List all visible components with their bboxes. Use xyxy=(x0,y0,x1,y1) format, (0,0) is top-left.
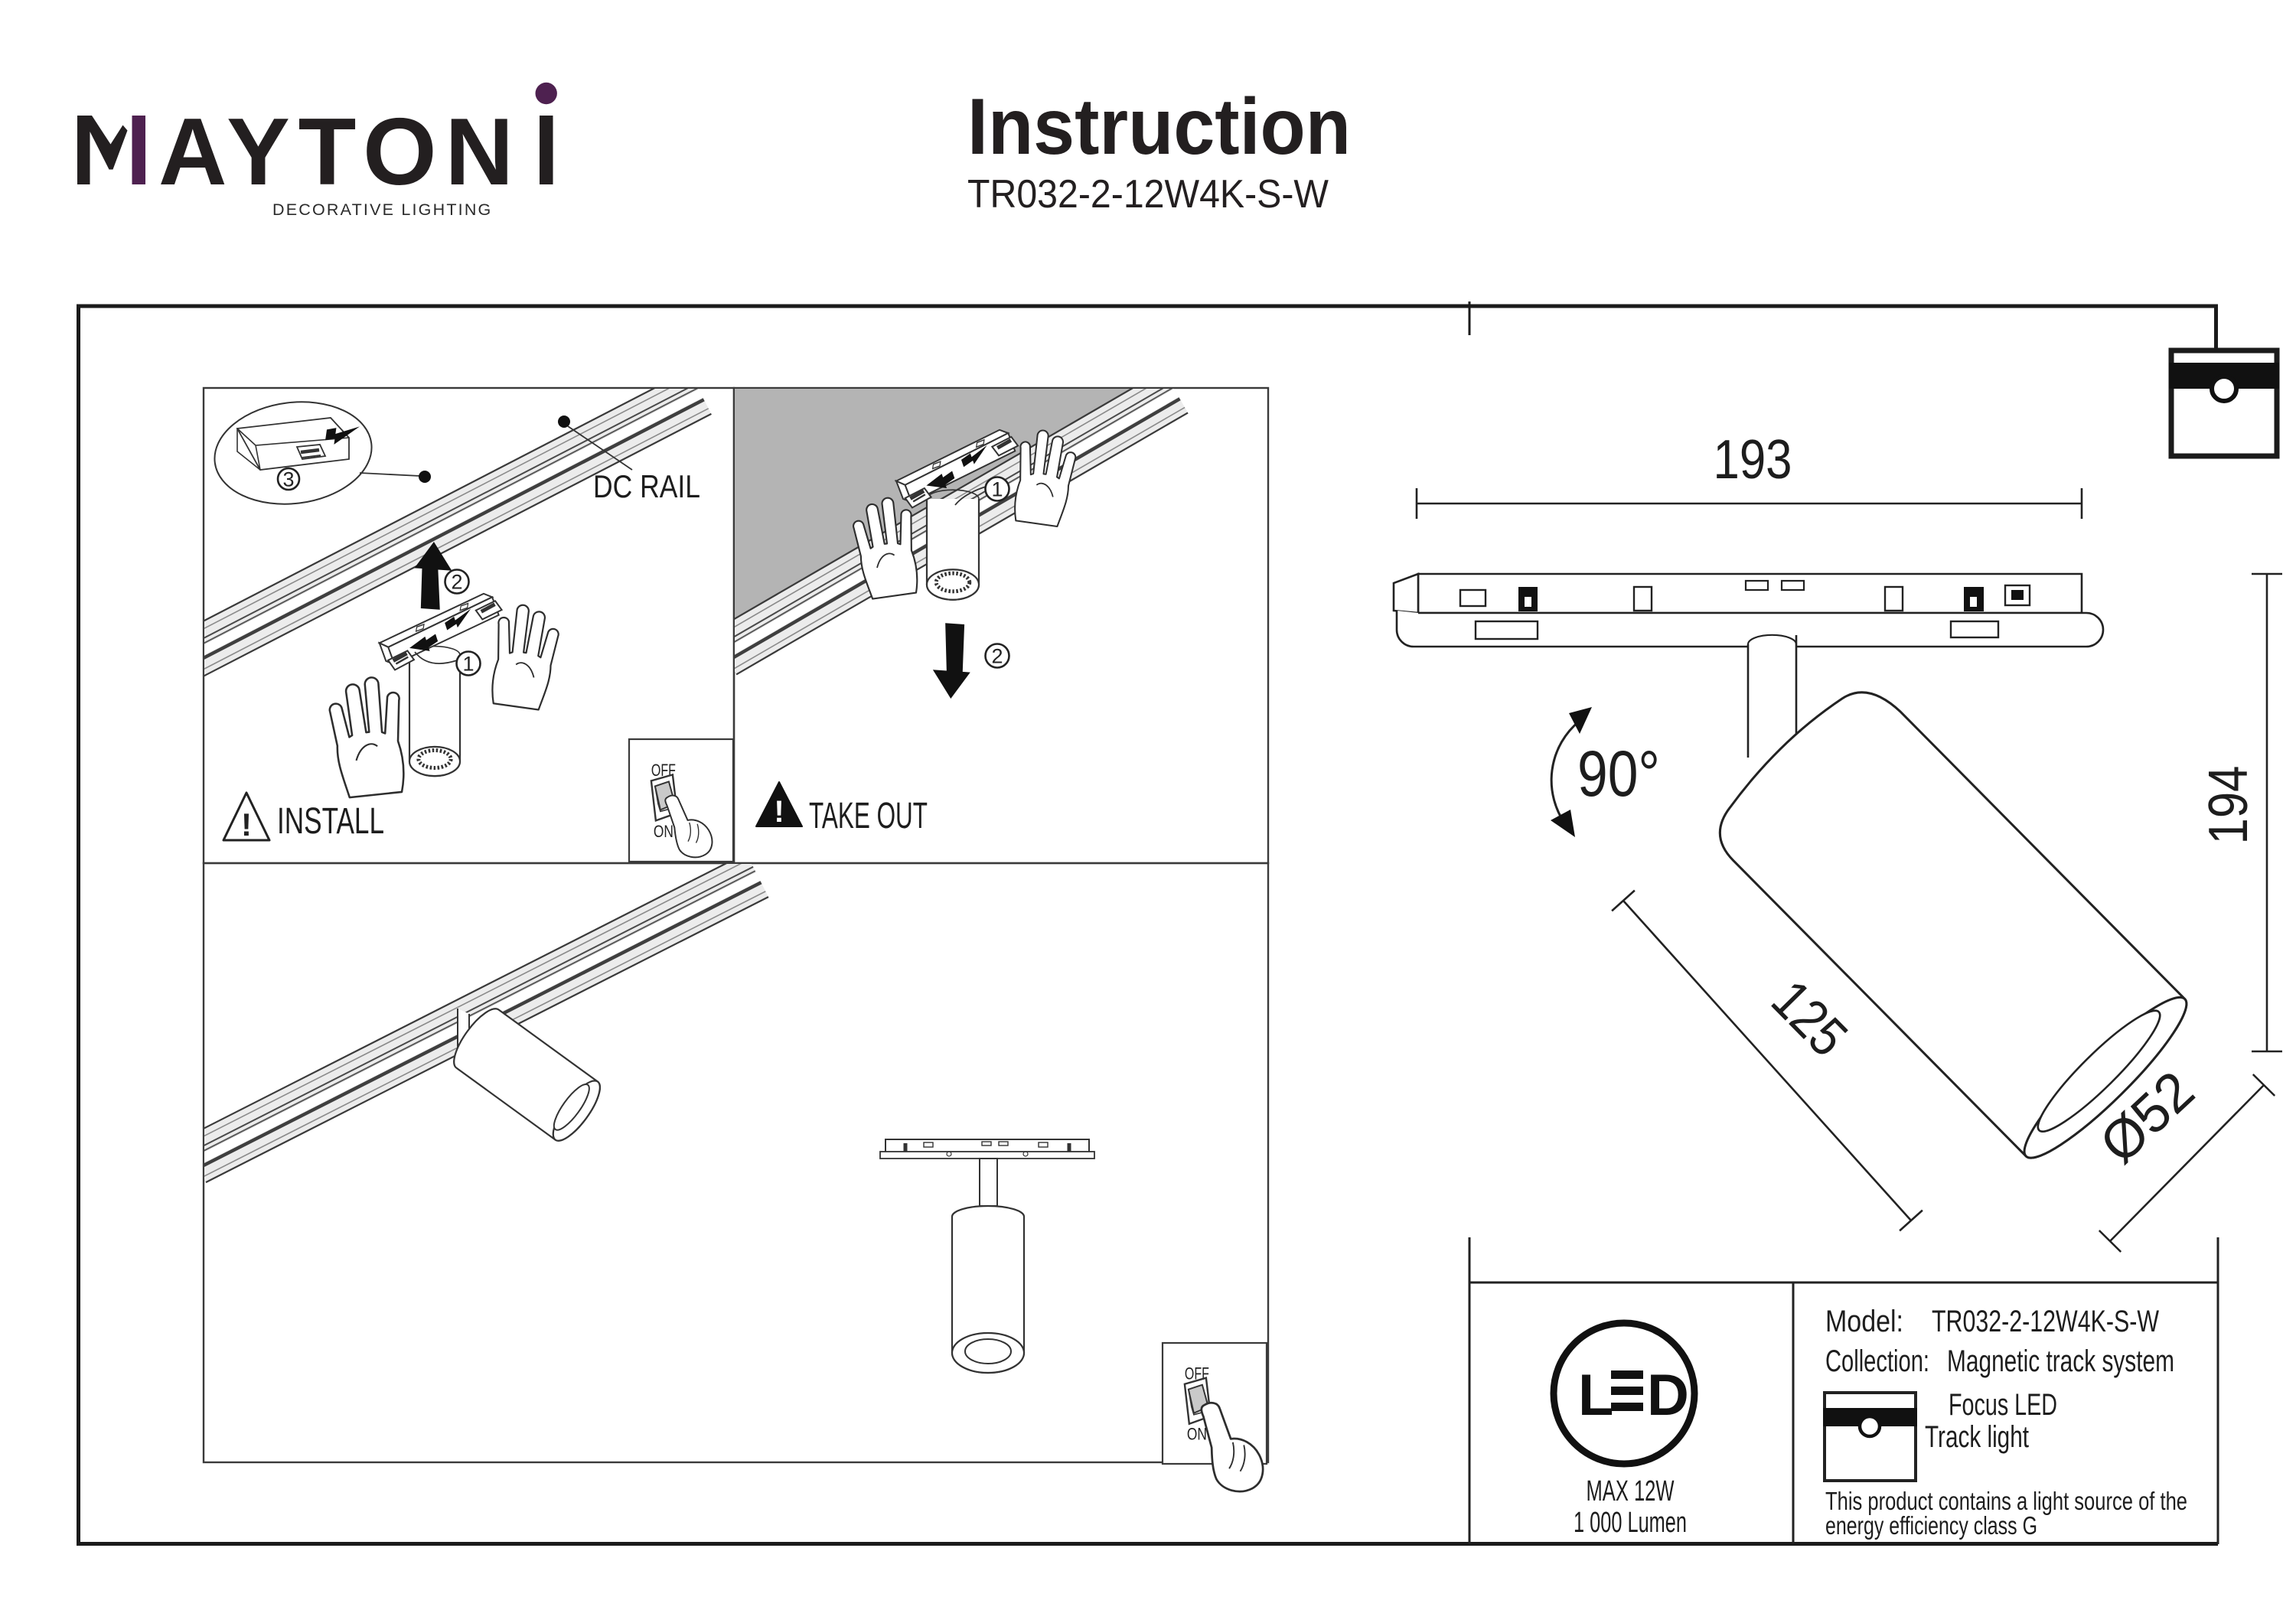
svg-text:194: 194 xyxy=(2198,766,2259,845)
svg-text:DECORATIVE LIGHTING: DECORATIVE LIGHTING xyxy=(272,200,493,219)
svg-text:Collection:: Collection: xyxy=(1825,1344,1929,1378)
svg-text:Track light: Track light xyxy=(1925,1420,2029,1454)
svg-text:1 000 Lumen: 1 000 Lumen xyxy=(1574,1507,1687,1539)
svg-text:L: L xyxy=(1578,1363,1613,1428)
svg-text:Focus LED: Focus LED xyxy=(1949,1388,2057,1422)
svg-text:2: 2 xyxy=(451,571,462,594)
svg-text:ON: ON xyxy=(654,822,673,841)
svg-text:DC RAIL: DC RAIL xyxy=(593,468,700,504)
svg-text:ON: ON xyxy=(1187,1424,1207,1443)
svg-text:D: D xyxy=(1647,1363,1689,1428)
svg-text:Magnetic track system: Magnetic track system xyxy=(1947,1344,2174,1378)
svg-text:Model:: Model: xyxy=(1825,1305,1903,1338)
svg-text:energy efficiency class G: energy efficiency class G xyxy=(1825,1511,2037,1540)
svg-text:Instruction: Instruction xyxy=(967,83,1351,171)
svg-text:AYTON: AYTON xyxy=(158,99,514,205)
svg-text:1: 1 xyxy=(991,478,1003,501)
svg-text:!: ! xyxy=(774,795,784,829)
svg-text:1: 1 xyxy=(462,653,474,676)
svg-text:193: 193 xyxy=(1714,429,1792,490)
svg-text:INSTALL: INSTALL xyxy=(277,801,384,842)
svg-text:3: 3 xyxy=(282,468,294,491)
svg-text:TR032-2-12W4K-S-W: TR032-2-12W4K-S-W xyxy=(1932,1305,2159,1338)
svg-text:!: ! xyxy=(241,807,252,842)
svg-text:MAX 12W: MAX 12W xyxy=(1587,1475,1675,1507)
svg-text:2: 2 xyxy=(991,645,1003,668)
svg-text:TAKE OUT: TAKE OUT xyxy=(809,796,928,836)
svg-text:90°: 90° xyxy=(1577,738,1660,810)
svg-text:TR032-2-12W4K-S-W: TR032-2-12W4K-S-W xyxy=(967,172,1329,217)
